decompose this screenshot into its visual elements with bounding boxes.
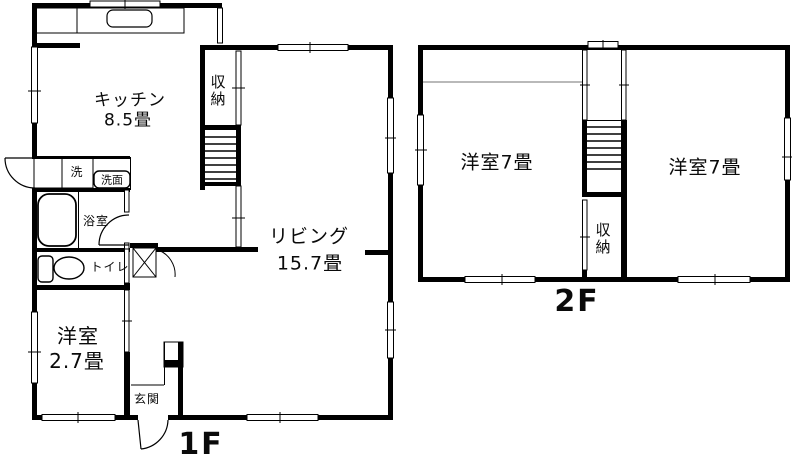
storage-1f-label: 収納	[210, 74, 225, 108]
bathroom-label: 浴室	[83, 215, 109, 227]
openings-1f	[125, 8, 242, 352]
western-room-2f-right-label: 洋室7畳	[668, 159, 741, 178]
floor2-label: 2F	[554, 287, 599, 317]
toilet-label: トイレ	[90, 261, 129, 273]
floor-plan: キッチン 8.5畳 収納 リビング 15.7畳 洗 洗面 浴室 トイレ 洋室 2…	[0, 0, 792, 458]
washroom-label: 洗面	[101, 175, 123, 186]
western-room-1f-label: 洋室	[57, 326, 99, 346]
western-room-2f-left-label: 洋室7畳	[460, 154, 533, 173]
washer-label: 洗	[70, 166, 83, 178]
storage-2f-label: 収納	[595, 222, 610, 256]
floorplan-canvas	[0, 0, 792, 458]
living-label: リビング	[269, 228, 349, 247]
stairs-1f	[205, 137, 236, 179]
living-size-label: 15.7畳	[277, 255, 343, 274]
entrance-label: 玄関	[134, 393, 160, 405]
floor1-label: 1F	[178, 430, 223, 458]
stairs-2f	[587, 121, 621, 170]
western-room-1f-size-label: 2.7畳	[49, 351, 105, 371]
kitchen-label: キッチン	[94, 93, 166, 110]
kitchen-size-label: 8.5畳	[104, 113, 152, 130]
